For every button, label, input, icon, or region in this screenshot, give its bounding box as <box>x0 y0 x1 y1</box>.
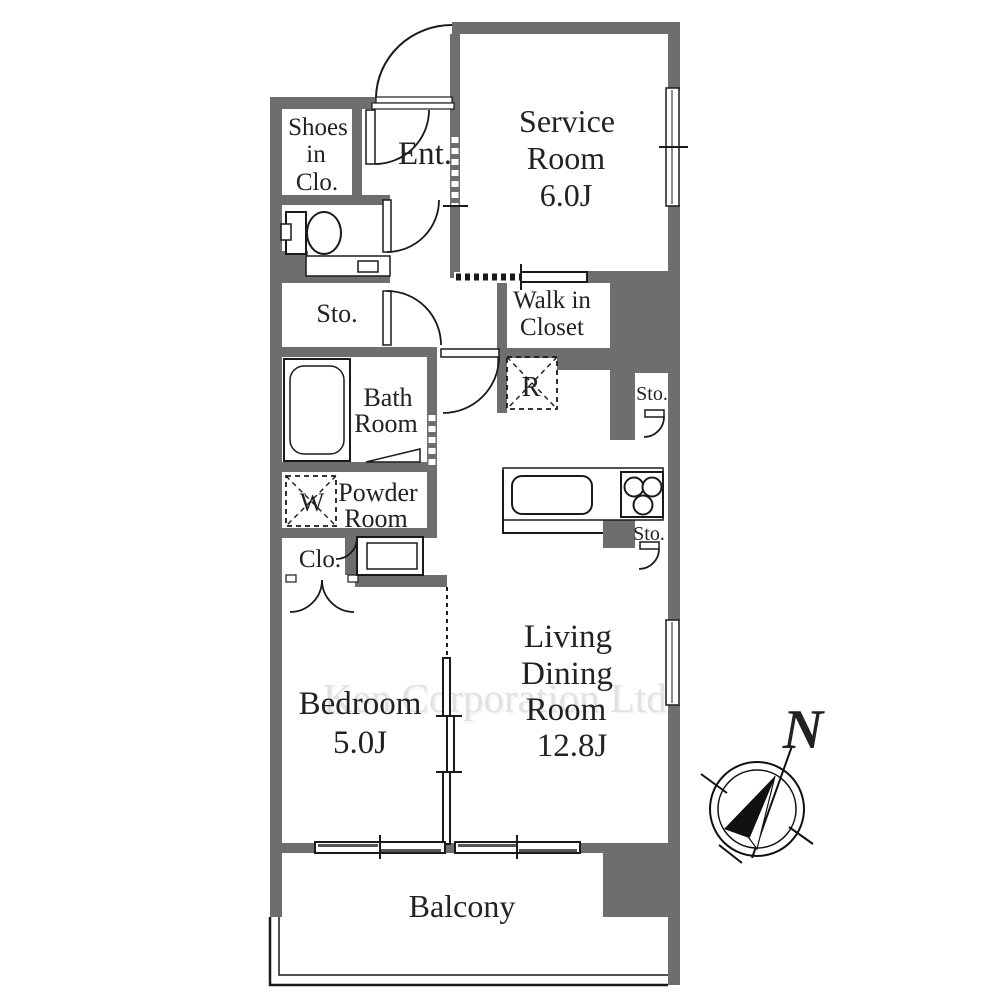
wall-top-left <box>270 97 376 109</box>
label-walk-in-closet-line-1: Walk in <box>513 287 591 314</box>
window-living-room <box>666 620 679 705</box>
bathtub <box>284 359 350 461</box>
wall-sto-bath <box>282 347 437 357</box>
wall-bottom-1 <box>282 843 315 853</box>
entrance-threshold-2 <box>372 103 454 109</box>
label-storage-hall: Sto. <box>316 299 357 328</box>
wic-sliding-panel <box>521 272 587 282</box>
label-service-room-line-2: Room <box>527 140 605 176</box>
label-bedroom-area: 5.0J <box>333 725 387 761</box>
wall-bottom-3 <box>580 843 668 853</box>
wall-service-bottom <box>585 271 668 283</box>
label-service-room-line-1: Service <box>519 103 615 139</box>
label-living-line-1: Living <box>524 619 612 655</box>
wall-shoes-toilet <box>282 195 390 205</box>
partition-panel-2 <box>447 716 454 772</box>
label-living-area: 12.8J <box>537 728 608 764</box>
wall-right-1 <box>668 22 680 90</box>
label-powder-room-line-2: Room <box>344 504 408 533</box>
label-balcony: Balcony <box>409 888 516 924</box>
label-bedroom: Bedroom <box>299 686 422 722</box>
label-shoes-in-closet-line-3: Clo. <box>296 169 338 196</box>
label-service-room-area: 6.0J <box>540 177 592 213</box>
floor-plan-page: Ken Corporation Ltd. Ken Corporation Ltd… <box>0 0 1000 1000</box>
wall-service-top <box>452 22 680 34</box>
vanity-fixture <box>357 537 423 575</box>
toilet-icon <box>281 212 341 254</box>
north-label: N <box>782 699 826 761</box>
label-shoes-in-closet-line-1: Shoes <box>288 114 348 141</box>
stove-burner-2 <box>643 478 662 497</box>
wall-bedroom-top <box>355 575 447 587</box>
toilet-counter <box>306 256 390 276</box>
label-storage-kitchen: Sto. <box>633 523 665 545</box>
label-bath-room-line-1: Bath <box>363 383 412 412</box>
entrance-threshold-1 <box>376 97 452 103</box>
wall-right-block-upper <box>610 283 668 373</box>
wall-right-2 <box>668 205 680 620</box>
wall-wic-step <box>557 348 610 370</box>
label-living-line-3: Room <box>526 692 607 728</box>
label-storage-living-upper: Sto. <box>636 383 668 405</box>
stove-burner-1 <box>625 478 644 497</box>
kitchen-sink <box>512 476 592 514</box>
partition-panel-3 <box>443 772 450 844</box>
wall-bath-powder <box>282 462 427 472</box>
label-washer-space: W <box>300 488 325 517</box>
partition-panel-1 <box>443 658 450 716</box>
label-refrigerator-space: R <box>522 372 541 403</box>
wall-right-3 <box>668 705 680 985</box>
wall-shoes-right <box>352 109 362 195</box>
wall-balcony-block <box>603 853 668 917</box>
floor-plan-svg: Ken Corporation Ltd. Ken Corporation Ltd… <box>0 0 1000 1000</box>
label-entrance: Ent. <box>398 136 452 172</box>
label-bath-room-line-2: Room <box>354 409 418 438</box>
label-living-line-2: Dining <box>521 656 613 692</box>
label-shoes-in-closet-line-2: in <box>306 141 326 168</box>
wall-right-block-lower <box>610 373 635 440</box>
label-closet: Clo. <box>299 546 341 573</box>
wall-left-outer <box>270 97 282 917</box>
stove-burner-3 <box>634 496 653 515</box>
label-powder-room-line-1: Powder <box>338 478 418 507</box>
label-walk-in-closet-line-2: Closet <box>520 314 584 341</box>
wall-kitchen-sto-block <box>603 518 635 548</box>
